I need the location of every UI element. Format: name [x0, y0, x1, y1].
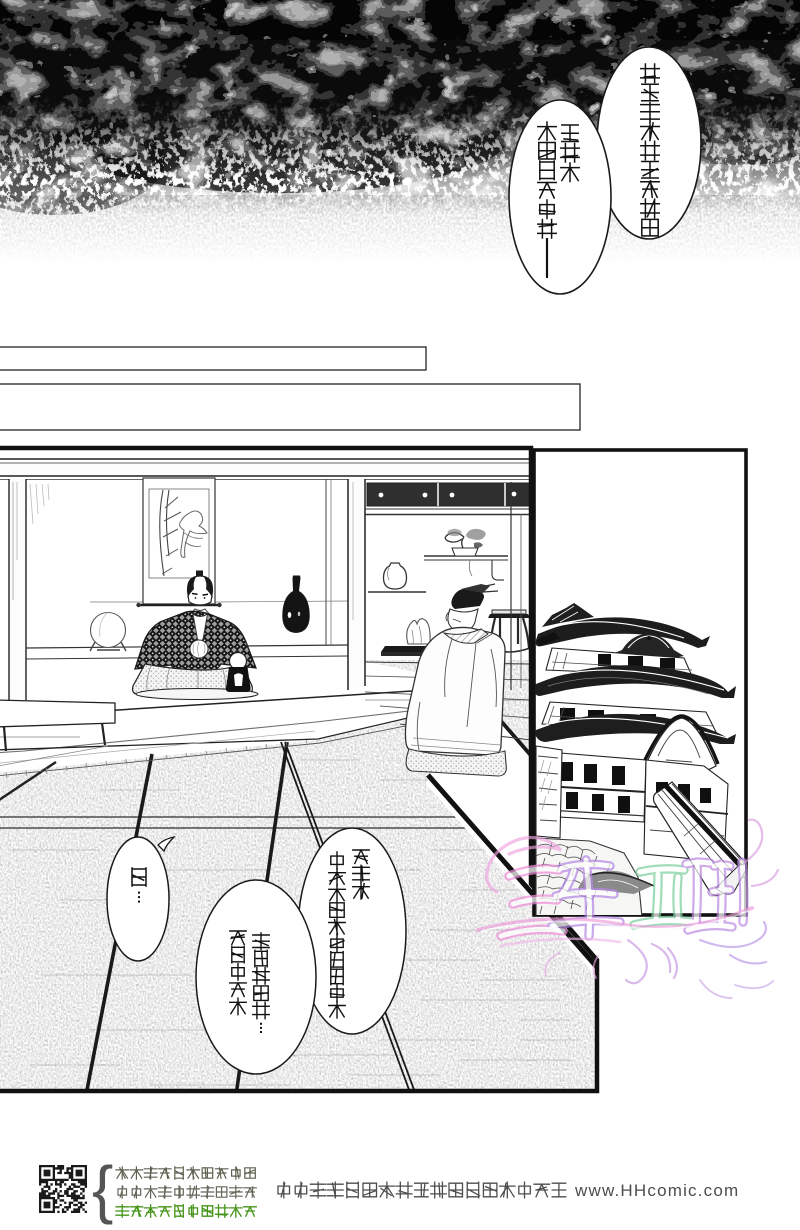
svg-text:www.HHcomic.com: www.HHcomic.com	[574, 1181, 739, 1200]
svg-text:{: {	[92, 1153, 113, 1225]
